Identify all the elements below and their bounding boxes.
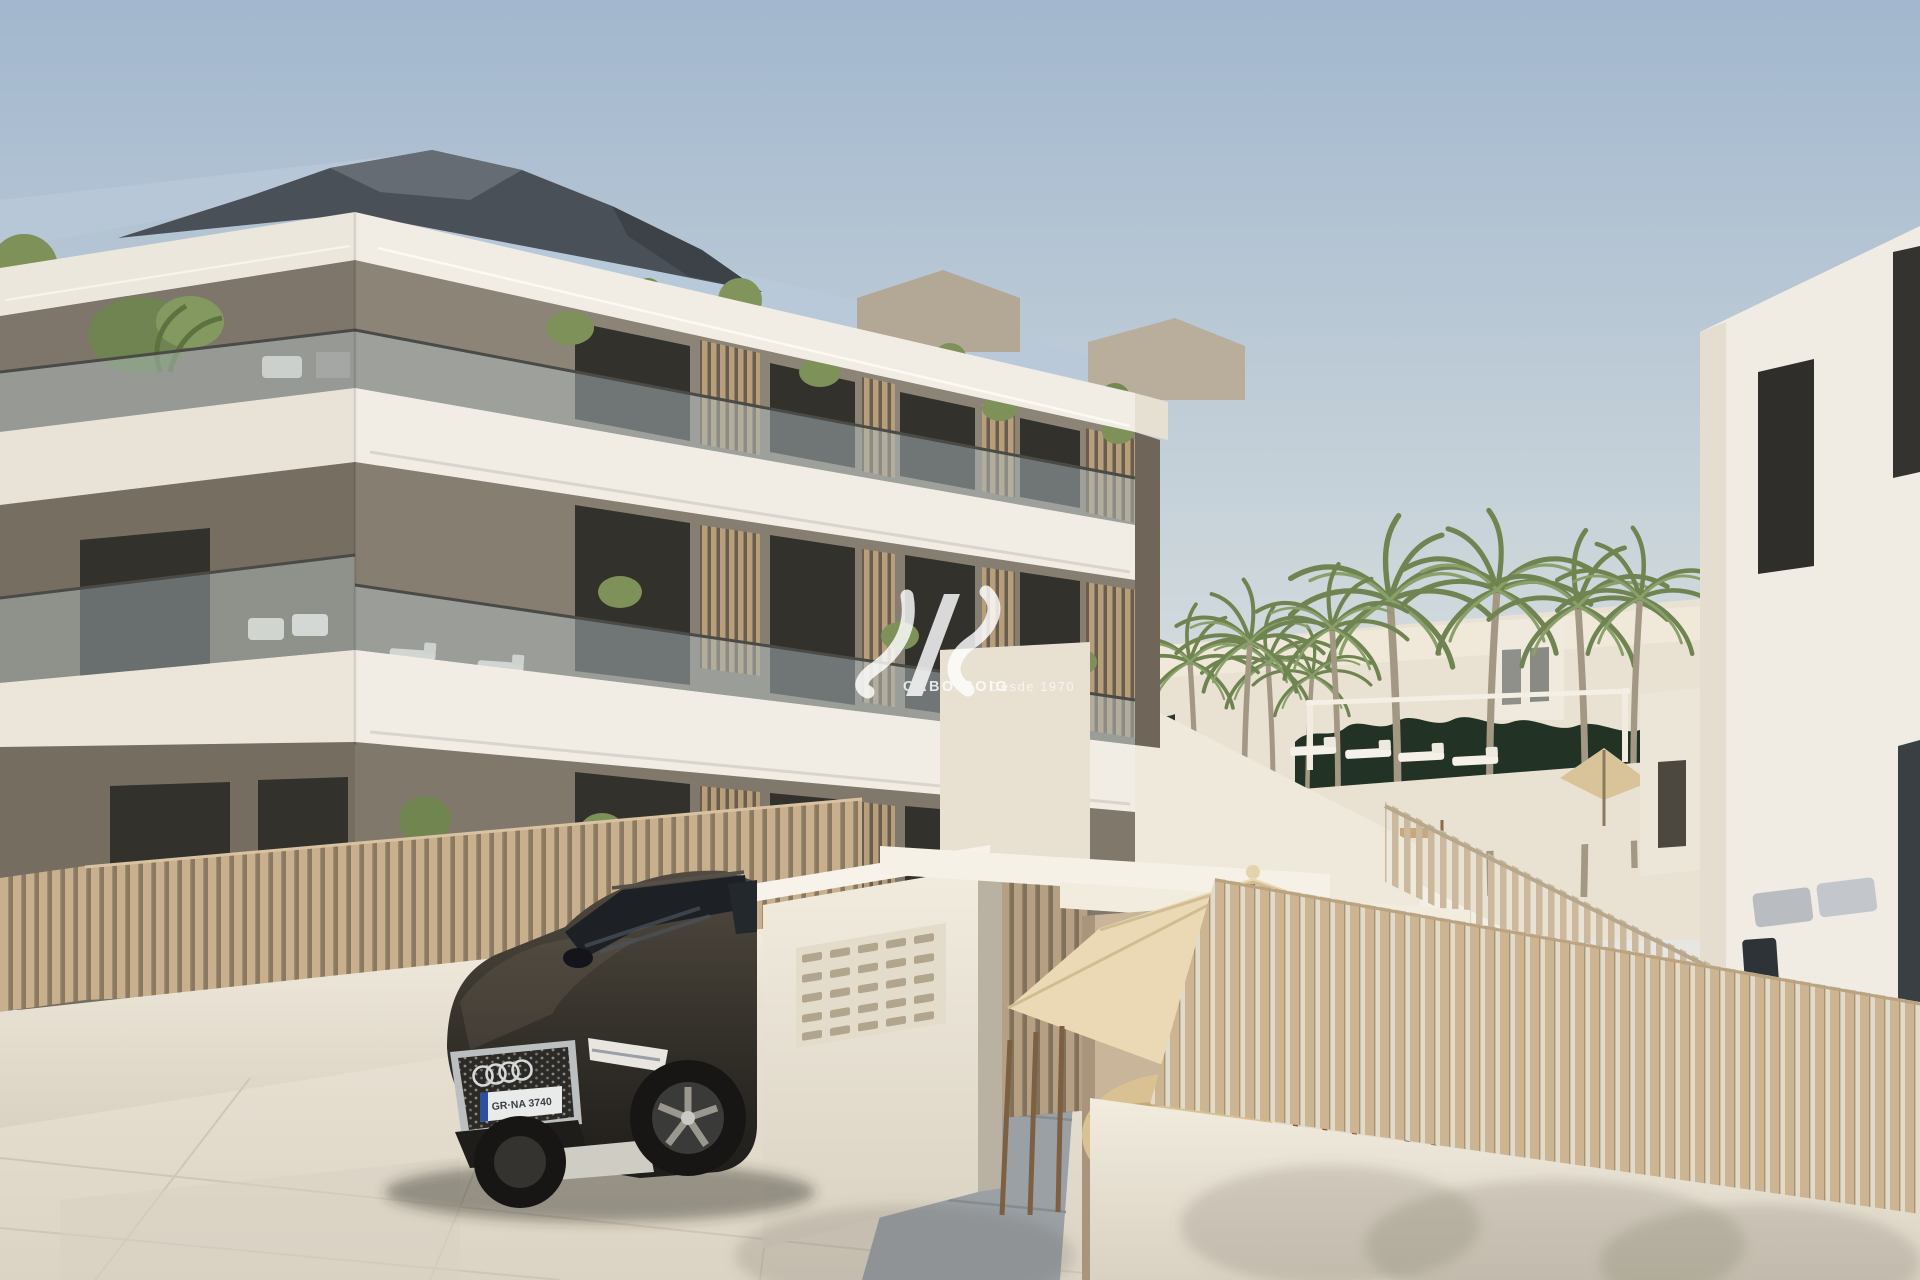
mailbox-wall-return bbox=[978, 868, 1002, 1192]
right-building-window bbox=[1898, 740, 1920, 1011]
right-building-window bbox=[1758, 359, 1814, 574]
car-mirror bbox=[563, 948, 593, 968]
wing-doorway bbox=[1658, 760, 1686, 848]
distant-tower bbox=[1490, 620, 1564, 720]
render-scene: GR·NA 3740 CABO ROIG Desde 1970 bbox=[0, 0, 1920, 1280]
fence-left-return bbox=[0, 866, 85, 1012]
right-building-window bbox=[1893, 246, 1920, 478]
scene-canvas: GR·NA 3740 CABO ROIG Desde 1970 bbox=[0, 0, 1920, 1280]
umbrella-finial bbox=[1246, 865, 1260, 879]
plate-eu-band bbox=[480, 1092, 488, 1122]
car-front-wheel bbox=[474, 1116, 566, 1208]
building-end-wall bbox=[1135, 432, 1160, 748]
watermark-tagline: Desde 1970 bbox=[990, 679, 1075, 694]
car-rear-wheel bbox=[630, 1060, 746, 1176]
